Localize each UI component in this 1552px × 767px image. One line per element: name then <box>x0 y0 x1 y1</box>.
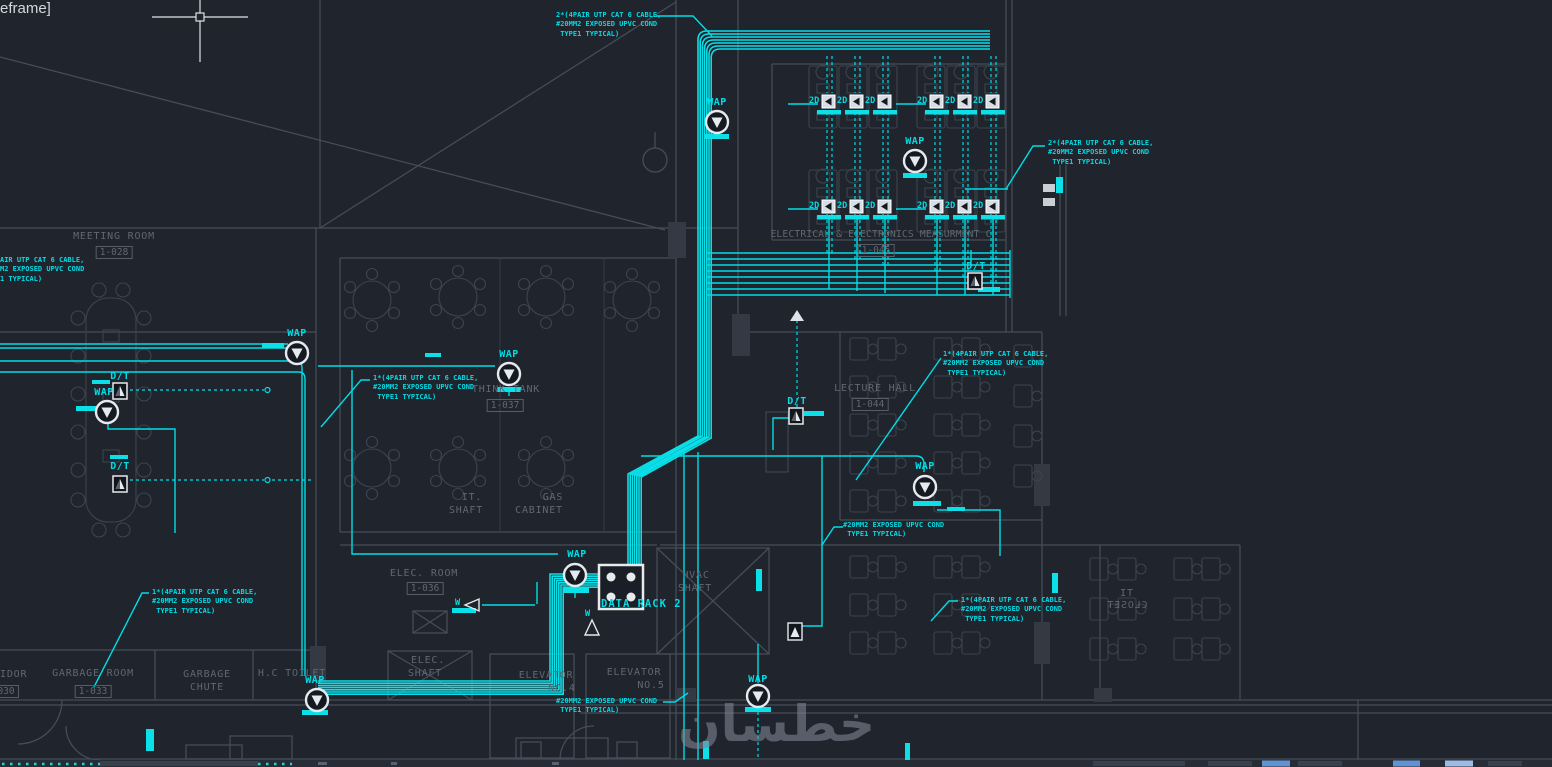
annotation-cable-top: 2*(4PAIR UTP CAT 6 CABLE, #20MM2 EXPOSED… <box>556 11 661 39</box>
crosshair-cursor <box>152 0 248 62</box>
annotation-cable-garbage: 1*(4PAIR UTP CAT 6 CABLE, #20MM2 EXPOSED… <box>152 588 257 616</box>
status-bar <box>0 760 1552 767</box>
wall-outlet-label-w-2: W <box>585 609 590 619</box>
wap-label-6: WAP <box>567 549 587 560</box>
room-number-meeting-room: 1-028 <box>96 246 133 259</box>
cable-endpoints <box>265 388 270 483</box>
room-label-it-shaft-1: IT. <box>462 492 482 503</box>
annotation-cable-think-tank: 1*(4PAIR UTP CAT 6 CABLE, #20MM2 EXPOSED… <box>373 374 478 402</box>
room-number-garbage-room: 1-033 <box>75 685 112 698</box>
outlet-label-2d-12: 2D <box>973 201 983 211</box>
watermark-text: خطسان <box>678 694 928 754</box>
wap-label-8: WAP <box>748 674 768 685</box>
dt-label-3: D/T <box>787 396 807 407</box>
data-rack-label: DATA RACK 2 <box>601 598 682 610</box>
floor-plan-drawing <box>0 0 1552 767</box>
architecture-walls <box>0 0 1552 760</box>
outlet-label-2d-3: 2D <box>865 96 875 106</box>
room-number-elec-room: 1-036 <box>407 582 444 595</box>
room-label-garbage-chute-1: GARBAGE <box>183 669 231 680</box>
outlet-label-2d-6: 2D <box>973 96 983 106</box>
room-label-elevator4-2: NO.4 <box>548 683 575 694</box>
wap-label-3: WAP <box>287 328 307 339</box>
wap-label-2: WAP <box>905 136 925 147</box>
room-number-measurement: 1-045 <box>858 244 895 257</box>
outlet-label-2d-8: 2D <box>837 201 847 211</box>
status-button-3[interactable] <box>1445 761 1473 767</box>
outlet-label-2d-11: 2D <box>945 201 955 211</box>
outlet-label-2d-10: 2D <box>917 201 927 211</box>
room-label-elec-shaft-2: SHAFT <box>408 668 442 679</box>
wap-label-9: WAP <box>305 675 325 686</box>
wap-label-1: WAP <box>707 97 727 108</box>
room-label-elevator4-1: ELEVATOR <box>519 670 574 681</box>
dt-label-2: D/T <box>110 461 130 472</box>
room-label-elec-shaft-1: ELEC. <box>411 655 445 666</box>
room-label-it-closet-1: IT <box>1120 588 1134 599</box>
annotation-cable-it-closet: 1*(4PAIR UTP CAT 6 CABLE, #20MM2 EXPOSED… <box>961 596 1066 624</box>
annotation-cable-right-top: 2*(4PAIR UTP CAT 6 CABLE, #20MM2 EXPOSED… <box>1048 139 1153 167</box>
wap-label-4: WAP <box>499 349 519 360</box>
room-label-garbage-chute-2: CHUTE <box>190 682 224 693</box>
room-label-gas-cabinet-1: GAS <box>543 492 563 503</box>
dt-label-1: D/T <box>110 371 130 382</box>
room-number-think-tank: 1-037 <box>487 399 524 412</box>
room-label-gas-cabinet-2: CABINET <box>515 505 563 516</box>
status-button-2[interactable] <box>1393 761 1420 767</box>
room-label-hvac-shaft-2: SHAFT <box>678 583 712 594</box>
room-label-elevator5-1: ELEVATOR <box>607 667 662 678</box>
viewport-overlay-label: eframe] <box>0 0 51 17</box>
status-button-1[interactable] <box>1262 761 1290 767</box>
outlet-label-2d-5: 2D <box>945 96 955 106</box>
outlet-label-2d-2: 2D <box>837 96 847 106</box>
cad-viewport[interactable]: خطسان eframe] 2*(4PAIR UTP CAT 6 CABLE, … <box>0 0 1552 767</box>
annotation-cond-mid: #20MM2 EXPOSED UPVC COND TYPE1 TYPICAL) <box>843 521 944 540</box>
room-label-hvac-shaft-1: HVAC <box>682 570 709 581</box>
wall-outlet-label-w-1: W <box>455 598 460 608</box>
annotation-cond-elevator: #20MM2 EXPOSED UPVC COND TYPE1 TYPICAL) <box>556 697 657 716</box>
room-label-think-tank: THINK TANK <box>472 384 540 395</box>
annotation-cable-lecture-hall: 1*(4PAIR UTP CAT 6 CABLE, #20MM2 EXPOSED… <box>943 350 1048 378</box>
room-label-corridor-clipped: IDOR <box>0 669 27 680</box>
outlet-label-2d-9: 2D <box>865 201 875 211</box>
room-label-it-shaft-2: SHAFT <box>449 505 483 516</box>
wap-label-5: WAP <box>94 387 114 398</box>
room-label-garbage-room: GARBAGE ROOM <box>52 668 134 679</box>
room-label-lecture-hall: LECTURE HALL <box>834 383 916 394</box>
room-number-lecture-hall: 1-044 <box>852 398 889 411</box>
room-label-measurement: ELECTRICAL & ELECTRONICS MEASURMENT C <box>770 229 991 240</box>
room-label-elec-room: ELEC. ROOM <box>390 568 458 579</box>
annotation-cable-left-clipped: AIR UTP CAT 6 CABLE, M2 EXPOSED UPVC CON… <box>0 256 84 284</box>
dt-label-4: D/T <box>966 261 986 272</box>
outlet-label-2d-4: 2D <box>917 96 927 106</box>
outlet-label-2d-7: 2D <box>809 201 819 211</box>
room-label-elevator5-2: NO.5 <box>637 680 664 691</box>
room-label-meeting-room: MEETING ROOM <box>73 231 155 242</box>
room-label-it-closet-2-mirrored: CLOSET <box>1107 600 1148 611</box>
outlet-label-2d-1: 2D <box>809 96 819 106</box>
wap-label-7: WAP <box>915 461 935 472</box>
room-number-corridor-clipped: 1-030 <box>0 685 19 698</box>
